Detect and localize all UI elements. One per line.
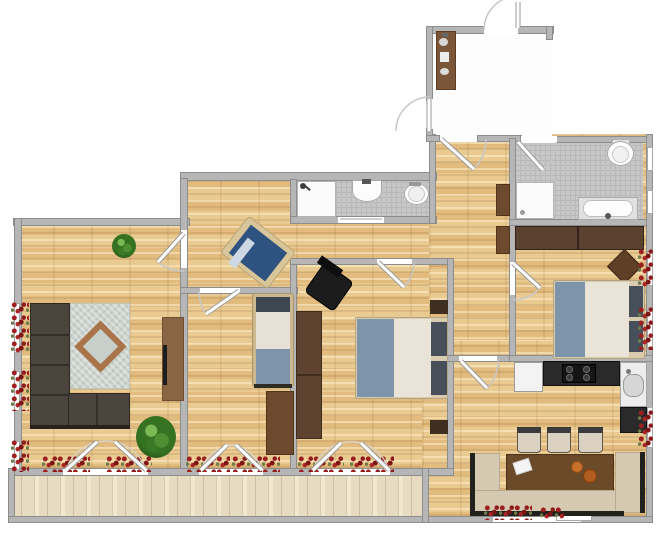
burner-3 <box>566 374 573 381</box>
kids-bed-blanket <box>256 349 290 384</box>
entry-cabinet-item-1 <box>439 38 448 46</box>
dining-chair-1-back <box>517 427 541 433</box>
flowers-living-left-2 <box>11 369 29 411</box>
opening-tophall-door <box>440 135 477 142</box>
bench-trim-left <box>470 453 475 516</box>
master-bed-sheet <box>394 319 431 397</box>
wall-entry-bottom-a <box>426 135 440 142</box>
wall-bath2-bottom <box>509 219 653 226</box>
opening-master-door <box>377 259 412 264</box>
kitchen-sink-bowl <box>623 374 644 397</box>
kids-bed-sheet <box>256 312 290 352</box>
window-bath2-1 <box>647 147 653 171</box>
bedroom3-bed-sheet <box>585 282 629 357</box>
bathtub-faucet <box>605 213 611 219</box>
wall-entry-left <box>426 26 433 101</box>
flowers-balcony-kids-2 <box>232 455 280 472</box>
wall-balcony-left <box>8 468 15 523</box>
sofa-cushion-line-4 <box>96 393 98 429</box>
bedroom3-bed-blanket <box>555 282 585 357</box>
entry-cabinet-item-3 <box>440 68 449 75</box>
master-bed-pillow-2 <box>431 361 447 395</box>
toilet-bath2-seat <box>612 146 629 163</box>
table-bowl-1 <box>571 461 583 473</box>
kids-bed-pillow <box>256 297 290 312</box>
apartment-floor-plan <box>0 0 666 540</box>
flowers-dining-2 <box>540 506 564 519</box>
flowers-balcony-living-1 <box>42 455 90 472</box>
bedroom3-wardrobe-divider <box>577 226 579 250</box>
wall-entry-top-cap <box>546 26 553 40</box>
opening-entrance <box>484 26 518 34</box>
window-bath2-2 <box>647 190 653 214</box>
balcony-floor <box>8 468 428 523</box>
hall-shelf-1 <box>496 184 510 216</box>
wall-living-top <box>13 218 190 226</box>
opening-bath2-door <box>521 136 557 143</box>
sofa-section-horizontal <box>68 393 130 429</box>
fridge <box>514 362 543 392</box>
sink-bath1-faucet <box>362 179 371 184</box>
opening-bedroom3-door <box>510 262 515 295</box>
wall-hall-bath1-right <box>429 134 436 224</box>
burner-1 <box>566 366 573 373</box>
entry-left-door-arc <box>396 97 430 131</box>
sofa-cushion-line-1 <box>30 334 70 336</box>
hall-shelf-2 <box>496 226 510 254</box>
burner-4 <box>583 374 590 381</box>
master-wardrobe-divider <box>296 374 322 376</box>
flowers-balcony-master-1 <box>298 455 344 472</box>
toilet-bath1-seat <box>408 186 425 202</box>
wall-balcony-bottom <box>8 516 428 523</box>
toilet-bath1-button <box>409 182 421 186</box>
plant-small <box>112 234 136 258</box>
opening-bath1-door <box>338 217 384 223</box>
plant-large <box>136 416 176 458</box>
flowers-balcony-master-2 <box>350 455 394 472</box>
bedroom3-wardrobe <box>515 226 644 250</box>
entry-cabinet-item-4 <box>442 33 448 37</box>
master-bed-pillow-1 <box>431 322 447 356</box>
entry-cabinet-item-2 <box>440 52 449 62</box>
flowers-dining-1 <box>484 504 532 520</box>
dining-chair-3-back <box>578 427 603 433</box>
flowers-kitchen <box>638 409 653 447</box>
burner-2 <box>583 366 590 373</box>
opening-entry-left-door <box>427 99 433 129</box>
sofa-cushion-line-3 <box>30 394 70 396</box>
opening-kitchen-door <box>459 356 497 361</box>
master-bed-blanket <box>357 319 394 397</box>
wall-balcony-right <box>422 468 429 523</box>
wall-bath2-left <box>509 138 516 362</box>
master-nightstand-2 <box>430 420 448 434</box>
flowers-living-left-3 <box>11 439 29 472</box>
flowers-bedroom3-1 <box>638 248 653 287</box>
flowers-balcony-kids-1 <box>186 455 230 472</box>
table-bowl-2 <box>583 469 597 483</box>
shower-bath2-drain <box>520 210 525 215</box>
flowers-bedroom3-2 <box>638 306 653 350</box>
kitchen-sink-faucet <box>626 369 631 374</box>
flowers-living-left-1 <box>11 301 29 353</box>
wall-master-top <box>290 258 454 265</box>
tv-screen <box>163 345 167 385</box>
master-nightstand-1 <box>430 300 448 314</box>
wall-master-right <box>447 258 454 474</box>
flowers-balcony-living-2 <box>106 455 152 472</box>
opening-kids-door <box>200 288 240 293</box>
kids-desk <box>266 391 294 455</box>
dining-chair-2-back <box>547 427 571 433</box>
wall-hall-top <box>180 172 437 181</box>
sofa-cushion-line-2 <box>30 364 70 366</box>
sofa-base-shadow <box>30 425 130 429</box>
kids-bed-footboard <box>254 384 292 388</box>
opening-living-door <box>181 230 187 268</box>
bench-trim-right <box>640 452 645 513</box>
